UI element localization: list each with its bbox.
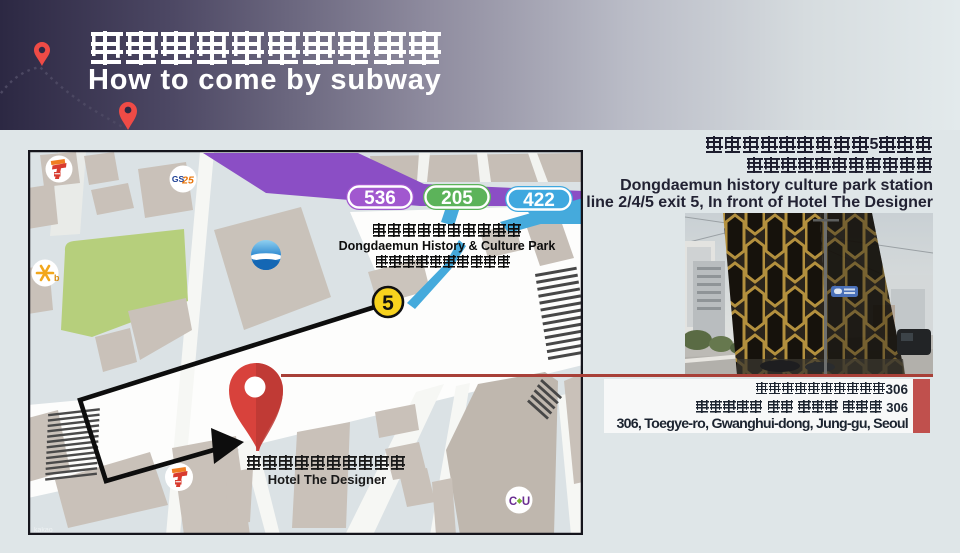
svg-text:C: C [509,496,517,508]
svg-text:205: 205 [441,188,473,209]
svg-text:U: U [522,496,530,508]
svg-text:5: 5 [382,292,394,315]
svg-text:25: 25 [181,175,194,187]
svg-text:536: 536 [364,188,396,209]
svg-text:b: b [54,273,60,283]
svg-text:422: 422 [523,190,555,211]
